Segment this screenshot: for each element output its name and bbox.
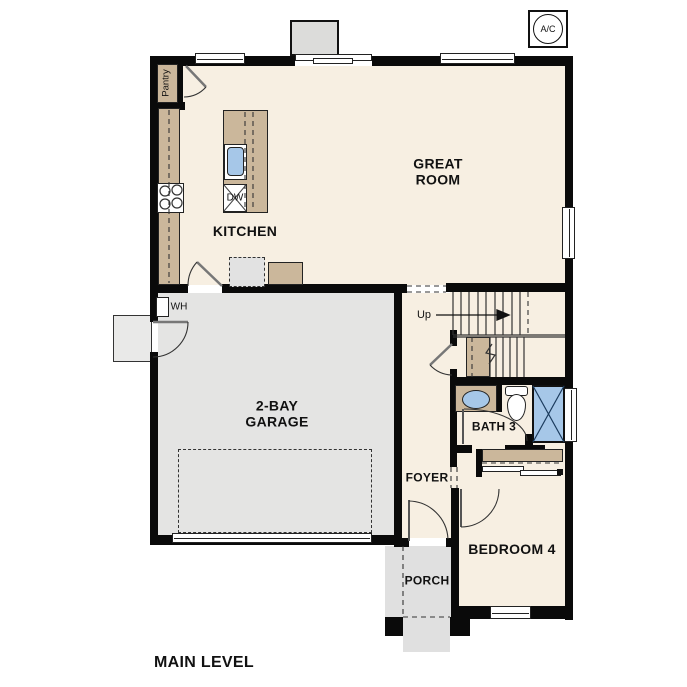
- detail-layer: [0, 0, 687, 687]
- stair-up-arrow: [436, 310, 509, 320]
- doors: [153, 66, 527, 541]
- wh-label: WH: [171, 301, 188, 312]
- pantry-label: Pantry: [162, 69, 173, 96]
- plan-title: MAIN LEVEL: [154, 654, 254, 672]
- dw-label: DW: [227, 192, 244, 203]
- bedroom-label: BEDROOM 4: [468, 542, 556, 558]
- ac-label: A/C: [540, 24, 555, 34]
- shower-glass-marks: [533, 386, 564, 442]
- garage-side-door: [153, 322, 188, 357]
- front-door: [409, 500, 448, 541]
- great-room-label: GREAT ROOM: [413, 156, 462, 187]
- garage-label: 2-BAY GARAGE: [245, 398, 308, 429]
- porch-label: PORCH: [405, 574, 450, 587]
- bedroom-door: [461, 489, 499, 527]
- floor-plan: GREAT ROOM KITCHEN 2-BAY GARAGE FOYER BA…: [0, 0, 687, 687]
- bath-label: BATH 3: [472, 420, 516, 433]
- staircase: [453, 292, 565, 377]
- cooktop-burners: [160, 185, 182, 209]
- pantry-door: [184, 66, 206, 97]
- stair-break-line: [486, 344, 495, 364]
- foyer-label: FOYER: [406, 471, 449, 484]
- kitchen-garage-door: [188, 262, 222, 286]
- kitchen-label: KITCHEN: [213, 224, 277, 240]
- up-label: Up: [417, 309, 431, 321]
- understair-closet-door: [430, 344, 452, 375]
